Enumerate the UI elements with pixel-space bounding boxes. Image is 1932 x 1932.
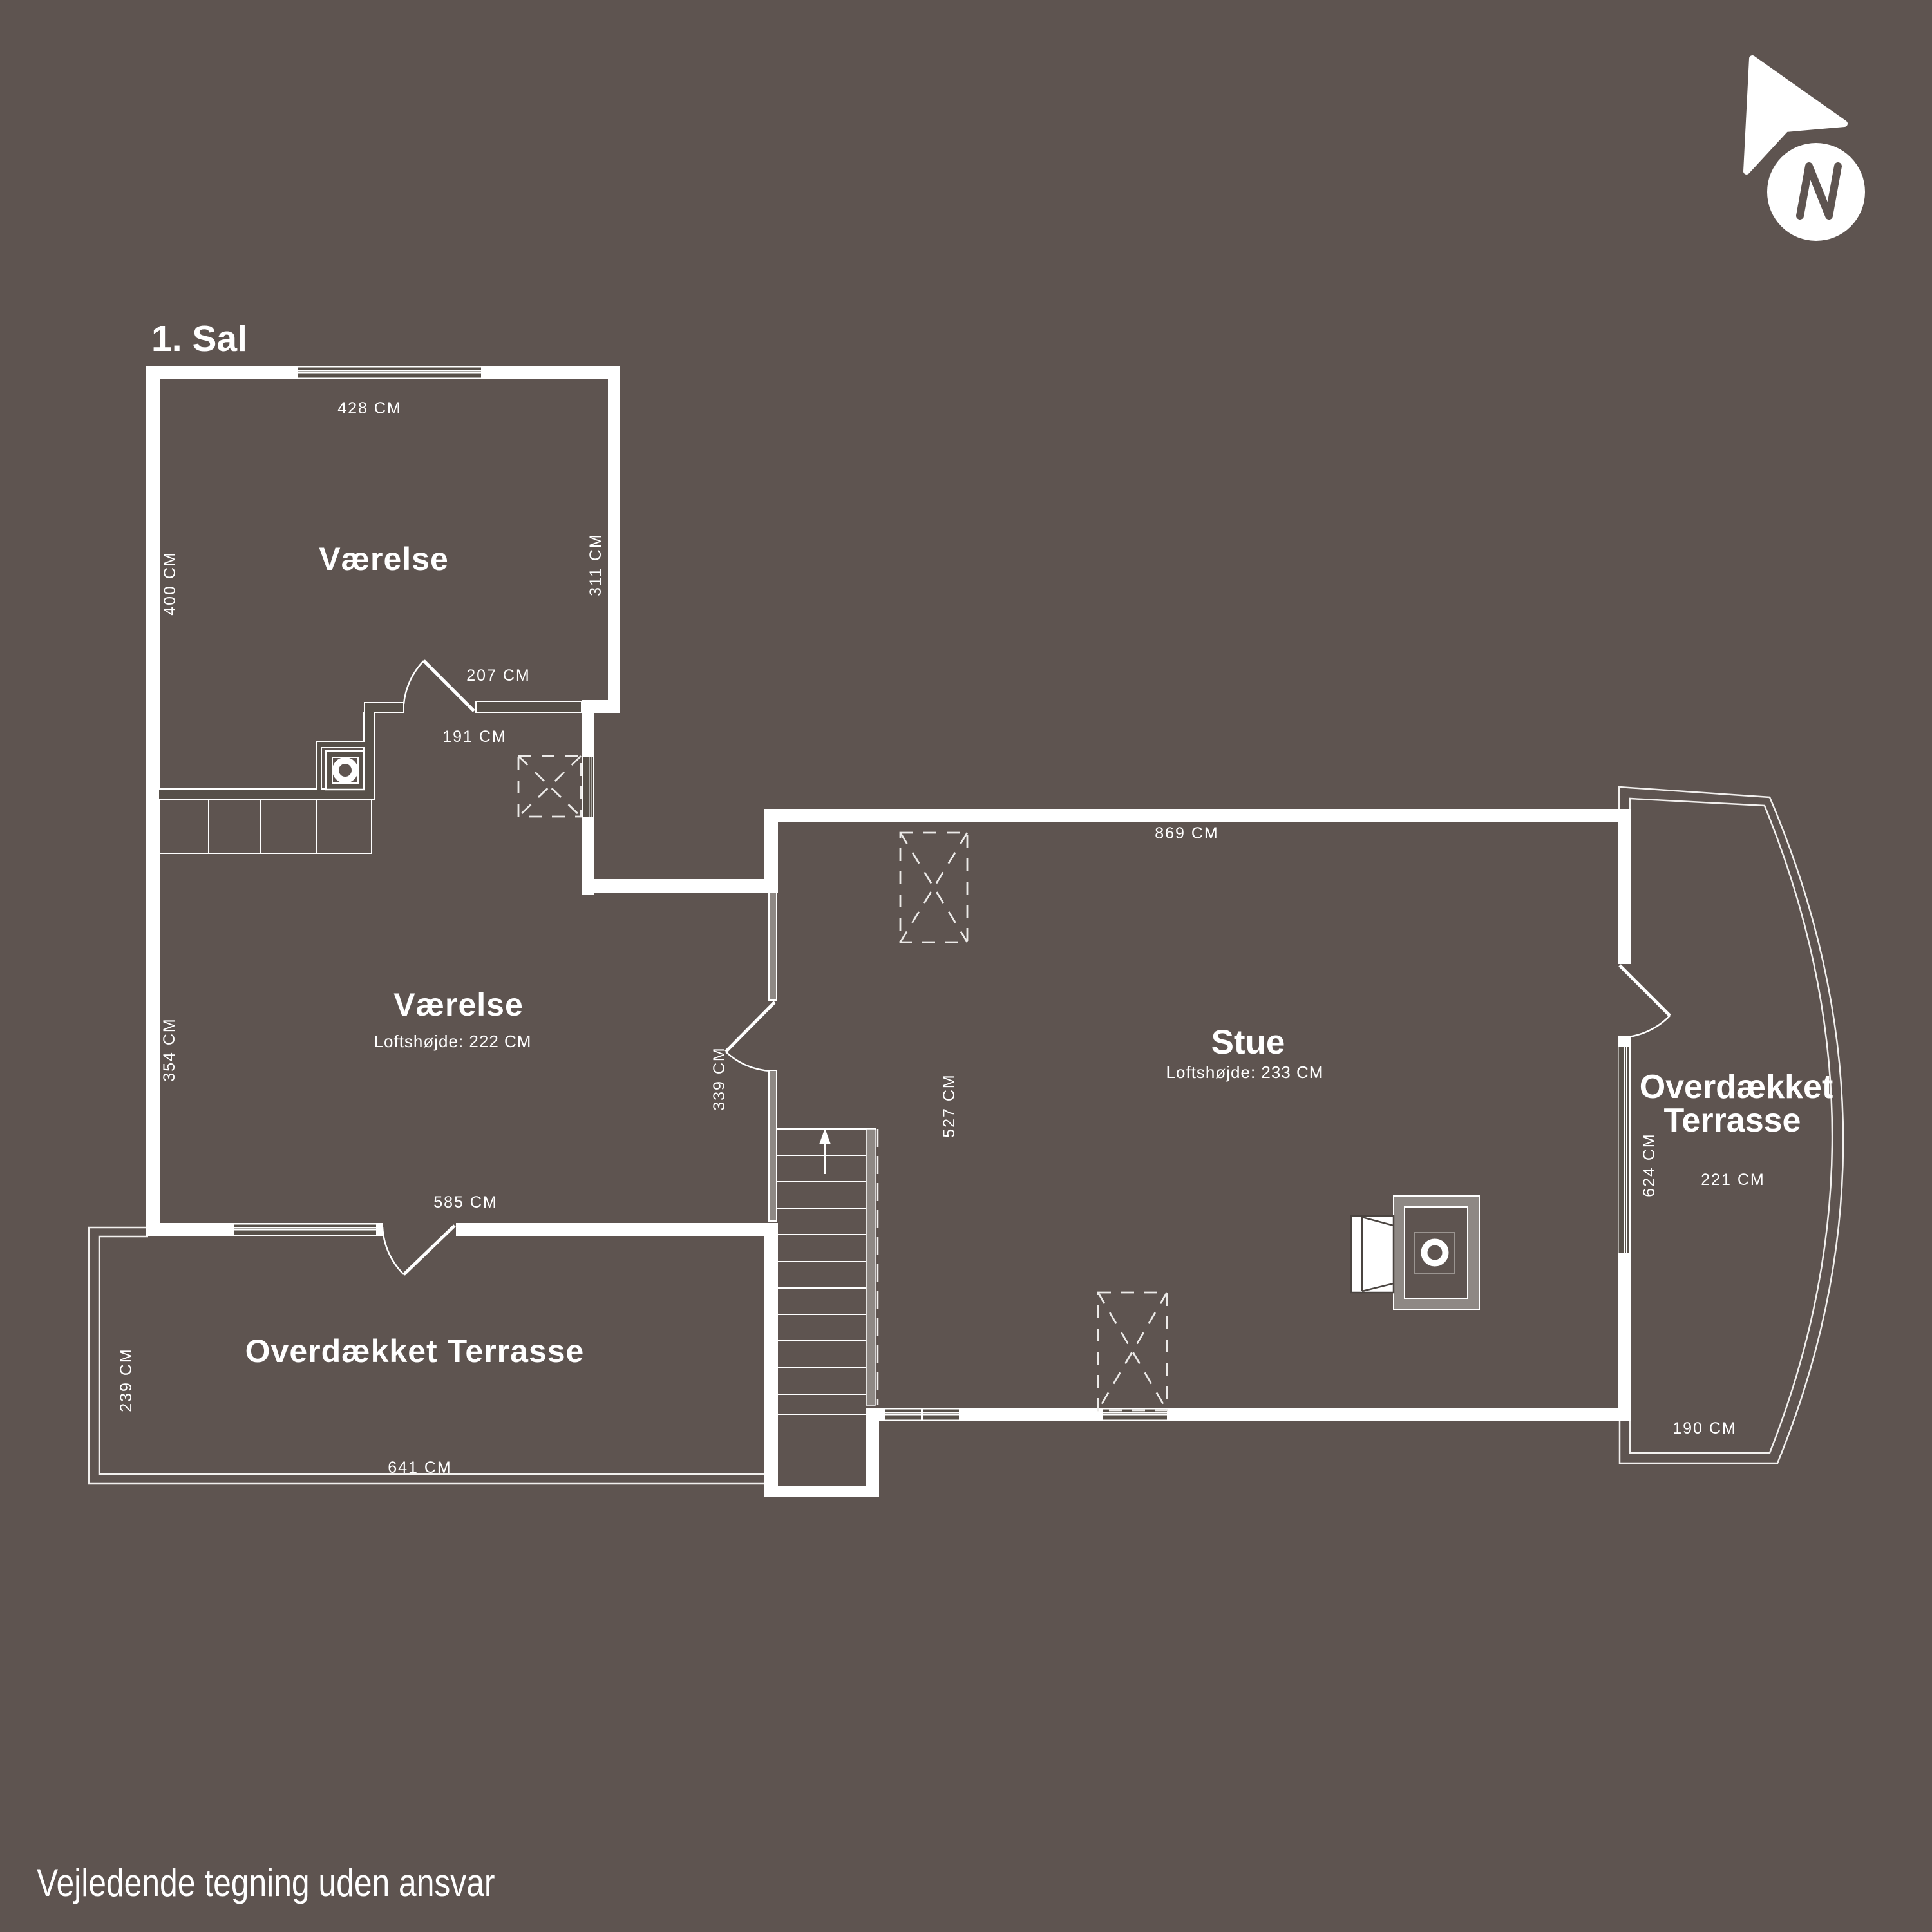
svg-text:190 CM: 190 CM (1672, 1419, 1737, 1437)
svg-text:527 CM: 527 CM (940, 1074, 958, 1138)
svg-text:585 CM: 585 CM (433, 1193, 498, 1211)
svg-text:354 CM: 354 CM (160, 1018, 178, 1082)
svg-text:239 CM: 239 CM (117, 1348, 135, 1412)
svg-text:869 CM: 869 CM (1155, 824, 1219, 842)
svg-text:Vejledende tegning uden ansvar: Vejledende tegning uden ansvar (37, 1861, 495, 1904)
svg-text:400 CM: 400 CM (161, 551, 179, 616)
svg-text:Overdækket: Overdækket (1640, 1068, 1833, 1106)
svg-text:624 CM: 624 CM (1640, 1133, 1658, 1197)
svg-text:311 CM: 311 CM (587, 533, 605, 596)
svg-text:1. Sal: 1. Sal (151, 318, 247, 359)
svg-text:Overdækket Terrasse: Overdækket Terrasse (245, 1333, 585, 1369)
svg-text:339 CM: 339 CM (710, 1046, 728, 1111)
svg-text:Terrasse: Terrasse (1664, 1102, 1801, 1139)
svg-text:Værelse: Værelse (319, 541, 449, 577)
svg-text:207 CM: 207 CM (466, 667, 531, 685)
svg-text:191 CM: 191 CM (442, 728, 507, 746)
svg-text:221 CM: 221 CM (1701, 1171, 1765, 1189)
svg-text:641 CM: 641 CM (388, 1459, 452, 1477)
svg-text:Loftshøjde: 222 CM: Loftshøjde: 222 CM (374, 1032, 532, 1051)
svg-text:428 CM: 428 CM (337, 399, 402, 417)
svg-text:Stue: Stue (1211, 1023, 1285, 1061)
svg-text:Loftshøjde: 233 CM: Loftshøjde: 233 CM (1166, 1063, 1324, 1082)
svg-text:Værelse: Værelse (393, 987, 524, 1023)
